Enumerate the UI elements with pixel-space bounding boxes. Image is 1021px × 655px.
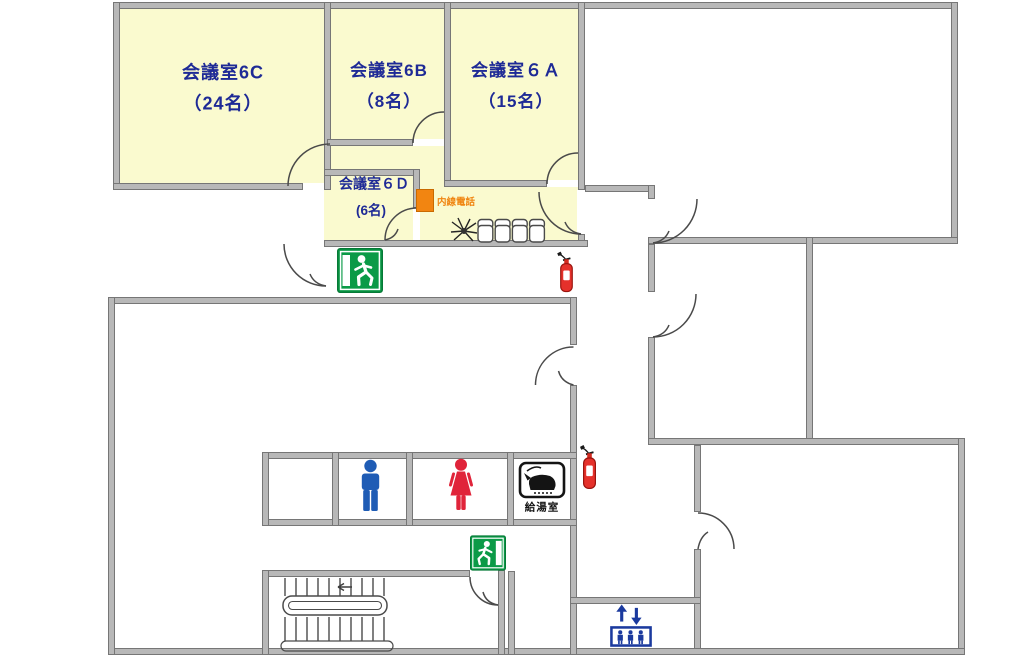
wall [648,438,965,445]
wall [108,297,577,304]
wall [262,570,470,577]
wall [406,452,413,526]
wall [324,2,331,190]
exit-sign-icon [337,248,383,293]
wall [444,2,451,187]
intercom-label: 内線電話 [437,194,475,208]
exit-sign-icon [470,535,506,571]
wall [332,452,339,526]
wall [498,570,505,655]
room-6c-capacity: （24名） [183,95,262,114]
wall [113,2,958,9]
kitchenette-sign-icon [518,461,566,501]
fire-extinguisher-icon [556,248,576,293]
room-6d-name: 会議室６Ｄ [339,177,409,192]
elevator-icon [609,602,653,647]
wall [806,237,813,445]
wall [113,183,303,190]
wall [113,2,120,190]
men-restroom-icon [357,459,384,514]
wall [262,519,577,526]
wall [648,185,655,199]
kitchenette-label: 給湯室 [525,502,560,513]
plant-icon [449,216,479,244]
wall [508,571,515,655]
wall [648,237,958,244]
floor-plan: 給湯室 [0,0,1021,655]
wall [578,2,585,190]
wall [585,185,655,192]
fire-extinguisher-icon [579,441,599,490]
wall [108,648,965,655]
room-6b-name: 会議室6B [350,62,428,80]
wall [648,244,655,292]
wall [648,337,655,445]
room-6b-capacity: （8名） [357,93,421,111]
room-6c-name: 会議室6C [182,64,264,83]
room-6d-capacity: (6名) [356,204,386,218]
wall [951,2,958,244]
wall [507,452,514,526]
wall [570,297,577,345]
intercom-phone-icon [416,189,434,212]
waiting-chairs-icon [477,218,547,244]
room-6a-name: 会議室６Ａ [471,62,561,80]
wall [958,438,965,655]
wall [444,180,547,187]
room-6a-capacity: （15名） [479,93,554,111]
wall [108,297,115,655]
women-restroom-icon [447,458,475,513]
wall [327,139,413,146]
wall [262,452,269,526]
wall [262,570,269,655]
wall [694,445,701,512]
wall [262,452,577,459]
